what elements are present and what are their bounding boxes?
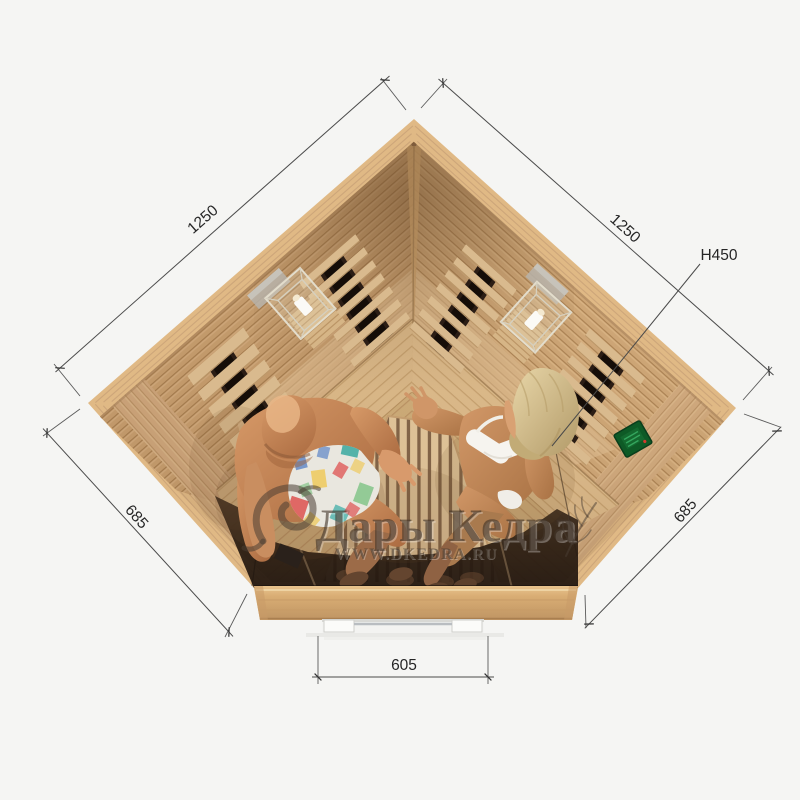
- svg-text:Дары Кедра: Дары Кедра: [315, 500, 576, 552]
- svg-text:605: 605: [391, 657, 417, 674]
- svg-text:H450: H450: [700, 247, 737, 264]
- svg-text:WWW.DKEDRA.RU: WWW.DKEDRA.RU: [335, 546, 498, 563]
